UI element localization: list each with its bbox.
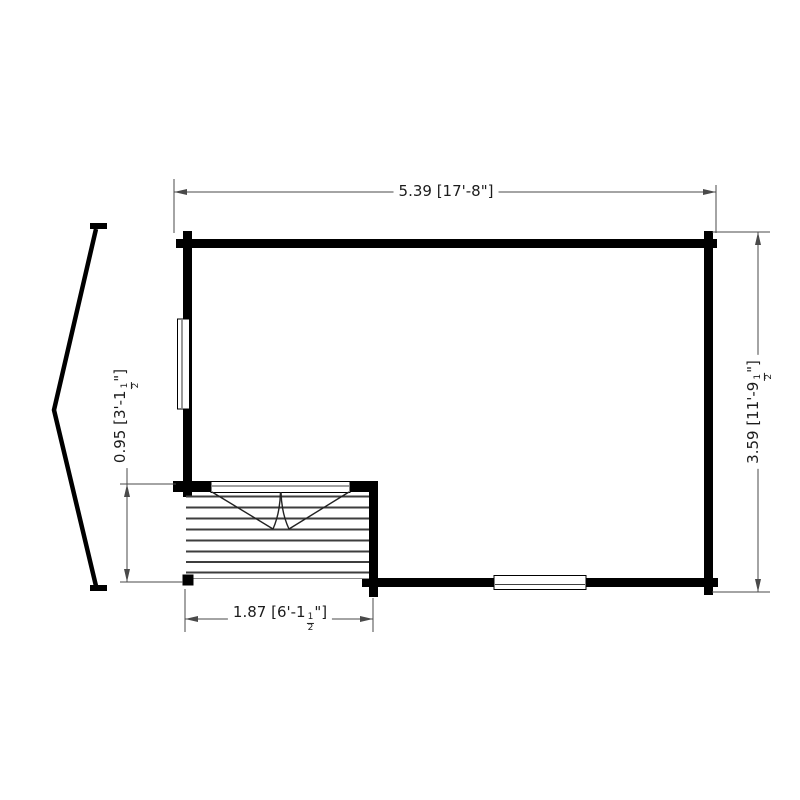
window-bottom-frame (494, 576, 586, 590)
door-arc-left (273, 492, 281, 529)
dimension-arrow (360, 616, 373, 622)
dimension-text: 1.87 [6'-1 (233, 603, 306, 621)
window-left-frame (178, 319, 190, 409)
dimension-arrow (755, 232, 761, 245)
fraction: 12 (121, 382, 141, 390)
dimension-label-bottom: 1.87 [6'-112"] (228, 603, 332, 633)
dimension-arrow (124, 484, 130, 497)
dimension-left (120, 462, 183, 582)
roof-apex-marker (54, 226, 107, 588)
dimension-arrow (174, 189, 187, 195)
door-leaf-right (289, 492, 349, 529)
dimension-arrow (755, 579, 761, 592)
dimension-text: "] (314, 603, 327, 621)
double-door (211, 482, 350, 530)
deck-post (183, 575, 194, 586)
dimension-text: 0.95 [3'-1 (111, 390, 129, 463)
window-left (178, 319, 190, 409)
dimension-arrow (703, 189, 716, 195)
door-threshold (211, 482, 350, 493)
decking (186, 497, 369, 579)
dimension-arrow (185, 616, 198, 622)
dimension-label-right: 3.59 [11'-912"] (744, 355, 774, 469)
wall-door-left (173, 481, 212, 492)
dimension-label-left: 0.95 [3'-112"] (111, 364, 141, 468)
dimension-text: 5.39 [17'-8"] (399, 182, 494, 200)
dimension-arrow (124, 569, 130, 582)
dimension-text: "] (744, 360, 762, 373)
wall-right (704, 231, 713, 595)
walls (173, 231, 718, 597)
door-arc-right (281, 492, 289, 529)
window-bottom (494, 576, 586, 590)
door-leaf-left (212, 492, 273, 529)
wall-veranda-right (369, 481, 378, 597)
dimension-text: 3.59 [11'-9 (744, 382, 762, 464)
dimension-text: "] (111, 369, 129, 382)
dimension-label-top: 5.39 [17'-8"] (394, 182, 499, 200)
floor-plan-drawing: 5.39 [17'-8"] 3.59 [11'-912"] 0.95 [3'-1… (0, 0, 800, 800)
roof-apex-line (54, 229, 96, 586)
fraction: 12 (754, 373, 774, 381)
door-swing (212, 492, 349, 529)
wall-top (176, 239, 717, 248)
